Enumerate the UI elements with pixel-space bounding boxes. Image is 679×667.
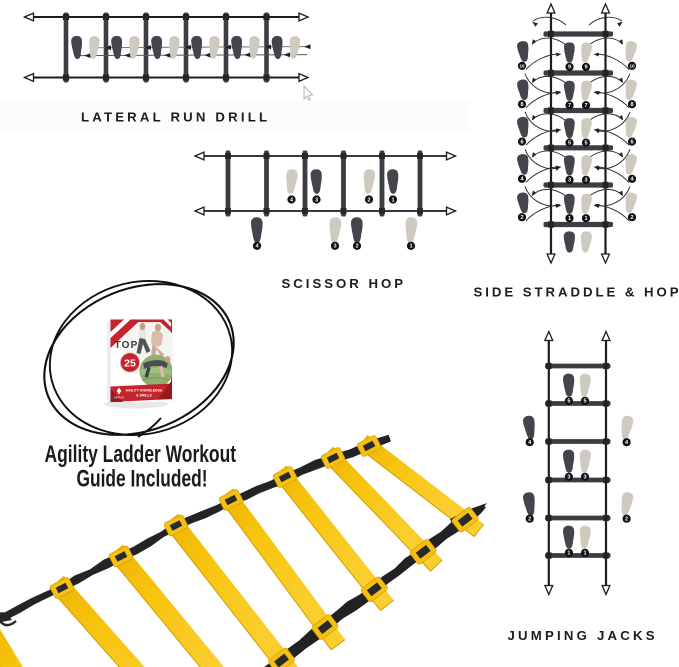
svg-text:10: 10 (519, 64, 525, 69)
svg-text:1: 1 (583, 551, 586, 557)
svg-text:1: 1 (567, 551, 570, 557)
svg-text:2: 2 (367, 197, 370, 203)
svg-text:5: 5 (583, 399, 586, 405)
svg-text:2: 2 (355, 244, 358, 250)
svg-text:5: 5 (568, 140, 571, 146)
svg-text:9: 9 (568, 65, 571, 71)
svg-text:TOP: TOP (115, 340, 139, 351)
svg-text:6: 6 (520, 139, 523, 145)
svg-text:25: 25 (124, 358, 136, 370)
svg-text:KIPRUN: KIPRUN (114, 396, 124, 400)
svg-text:3: 3 (568, 178, 571, 184)
svg-text:3: 3 (583, 475, 586, 481)
svg-text:3: 3 (567, 475, 570, 481)
svg-text:SCISSOR HOP: SCISSOR HOP (282, 276, 404, 291)
svg-text:SIDE STRADDLE & HOP: SIDE STRADDLE & HOP (474, 284, 679, 299)
svg-text:1: 1 (568, 216, 571, 222)
svg-text:5: 5 (584, 140, 587, 146)
svg-text:3: 3 (333, 244, 336, 250)
svg-text:& DRILLS: & DRILLS (136, 394, 152, 398)
svg-text:2: 2 (630, 215, 633, 221)
svg-text:Guide Included!: Guide Included! (77, 466, 208, 493)
svg-text:AGILITY KNOWLEDGE: AGILITY KNOWLEDGE (126, 389, 163, 393)
svg-text:5: 5 (567, 399, 570, 405)
svg-text:7: 7 (568, 103, 571, 109)
svg-text:2: 2 (625, 517, 628, 523)
svg-text:1: 1 (584, 216, 587, 222)
svg-text:1: 1 (409, 244, 412, 250)
svg-text:3: 3 (584, 178, 587, 184)
svg-text:2: 2 (520, 215, 523, 221)
svg-text:10: 10 (629, 64, 635, 69)
svg-text:7: 7 (584, 103, 587, 109)
svg-text:8: 8 (520, 102, 523, 108)
svg-text:Agility Ladder Workout: Agility Ladder Workout (45, 441, 237, 468)
svg-text:1: 1 (391, 197, 394, 203)
svg-text:8: 8 (630, 102, 633, 108)
svg-text:9: 9 (584, 65, 587, 71)
svg-text:2: 2 (528, 517, 531, 523)
svg-text:6: 6 (630, 139, 633, 145)
svg-text:3: 3 (315, 197, 318, 203)
